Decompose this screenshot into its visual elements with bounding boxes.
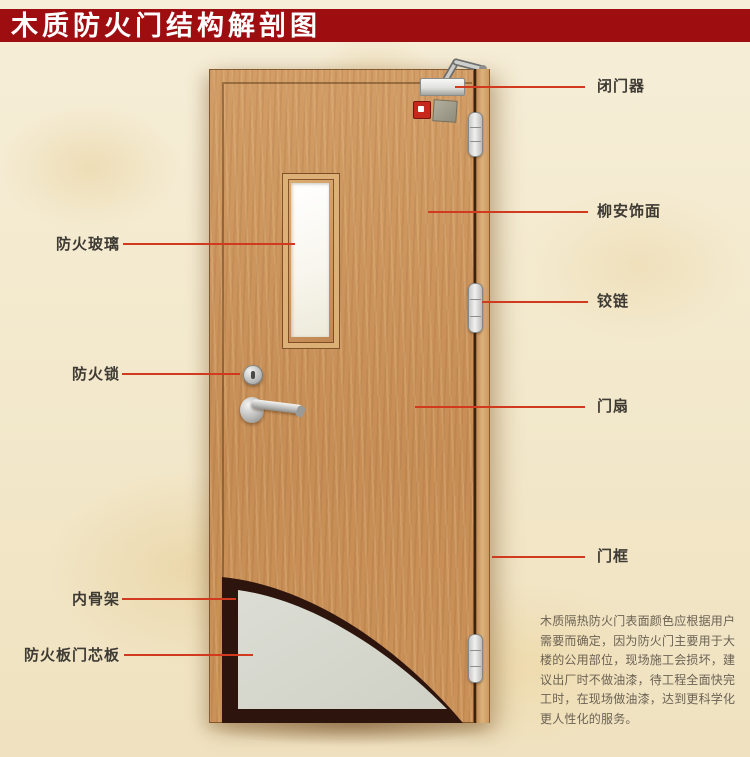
leader-line-fire-board-core bbox=[124, 654, 253, 656]
label-lauan-veneer: 柳安饰面 bbox=[597, 203, 661, 221]
leader-line-fire-lock bbox=[122, 373, 240, 375]
fire-glass-pane bbox=[291, 183, 329, 337]
label-door-frame: 门框 bbox=[597, 548, 629, 566]
leader-line-fire-glass bbox=[123, 243, 295, 245]
metal-plate bbox=[432, 99, 457, 123]
vision-panel-frame bbox=[282, 173, 340, 349]
label-fire-board-core: 防火板门芯板 bbox=[0, 647, 120, 665]
leader-line-hinge bbox=[482, 301, 588, 303]
leader-line-lauan-veneer bbox=[428, 211, 588, 213]
fire-door-illustration bbox=[209, 69, 490, 723]
label-door-leaf: 门扇 bbox=[597, 398, 629, 416]
hinge-bottom-icon bbox=[468, 634, 483, 683]
label-fire-glass: 防火玻璃 bbox=[0, 236, 120, 254]
label-door-closer: 闭门器 bbox=[597, 78, 645, 96]
infographic-canvas: 木质防火门结构解剖图 bbox=[0, 0, 750, 757]
red-indicator bbox=[413, 101, 431, 119]
label-fire-lock: 防火锁 bbox=[0, 366, 120, 384]
label-hinge: 铰链 bbox=[597, 293, 629, 311]
door-frame-strip bbox=[476, 69, 490, 723]
door-leaf bbox=[209, 69, 474, 723]
hinge-middle-icon bbox=[468, 283, 483, 333]
label-inner-skeleton: 内骨架 bbox=[0, 591, 120, 609]
leader-line-door-leaf bbox=[415, 406, 585, 408]
page-title: 木质防火门结构解剖图 bbox=[0, 9, 750, 43]
fire-lock-cylinder bbox=[243, 365, 263, 385]
hinge-top-icon bbox=[468, 112, 483, 157]
leader-line-door-frame bbox=[492, 556, 585, 558]
title-banner: 木质防火门结构解剖图 bbox=[0, 9, 750, 42]
leader-line-door-closer bbox=[455, 86, 585, 88]
leader-line-inner-skeleton bbox=[122, 598, 236, 600]
description-text: 木质隔热防火门表面颜色应根据用户 需要而确定，因为防火门主要用于大 楼的公用部位… bbox=[540, 612, 740, 729]
